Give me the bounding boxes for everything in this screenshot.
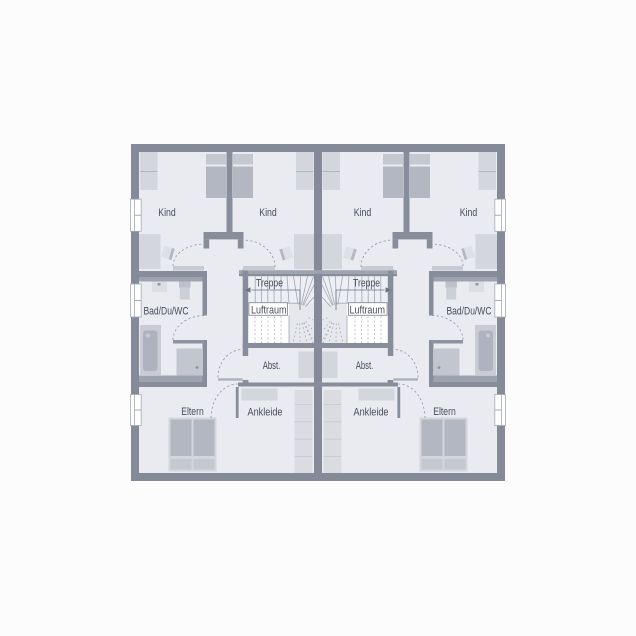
svg-text:Ankleide: Ankleide [248,407,283,419]
svg-text:Ankleide: Ankleide [354,407,389,419]
svg-text:Bad/Du/WC: Bad/Du/WC [144,306,189,318]
svg-text:Kind: Kind [158,207,176,219]
svg-text:Treppe: Treppe [353,278,380,290]
svg-text:Eltern: Eltern [433,406,456,418]
svg-text:Luftraum: Luftraum [349,304,385,316]
svg-text:Abst.: Abst. [356,360,374,372]
svg-text:Abst.: Abst. [263,360,281,372]
svg-text:Kind: Kind [460,207,478,219]
svg-text:Eltern: Eltern [181,406,204,418]
svg-text:Luftraum: Luftraum [251,304,287,316]
svg-text:Bad/Du/WC: Bad/Du/WC [447,306,492,318]
svg-text:Kind: Kind [259,207,277,219]
svg-text:Kind: Kind [354,207,372,219]
svg-text:Treppe: Treppe [256,278,283,290]
